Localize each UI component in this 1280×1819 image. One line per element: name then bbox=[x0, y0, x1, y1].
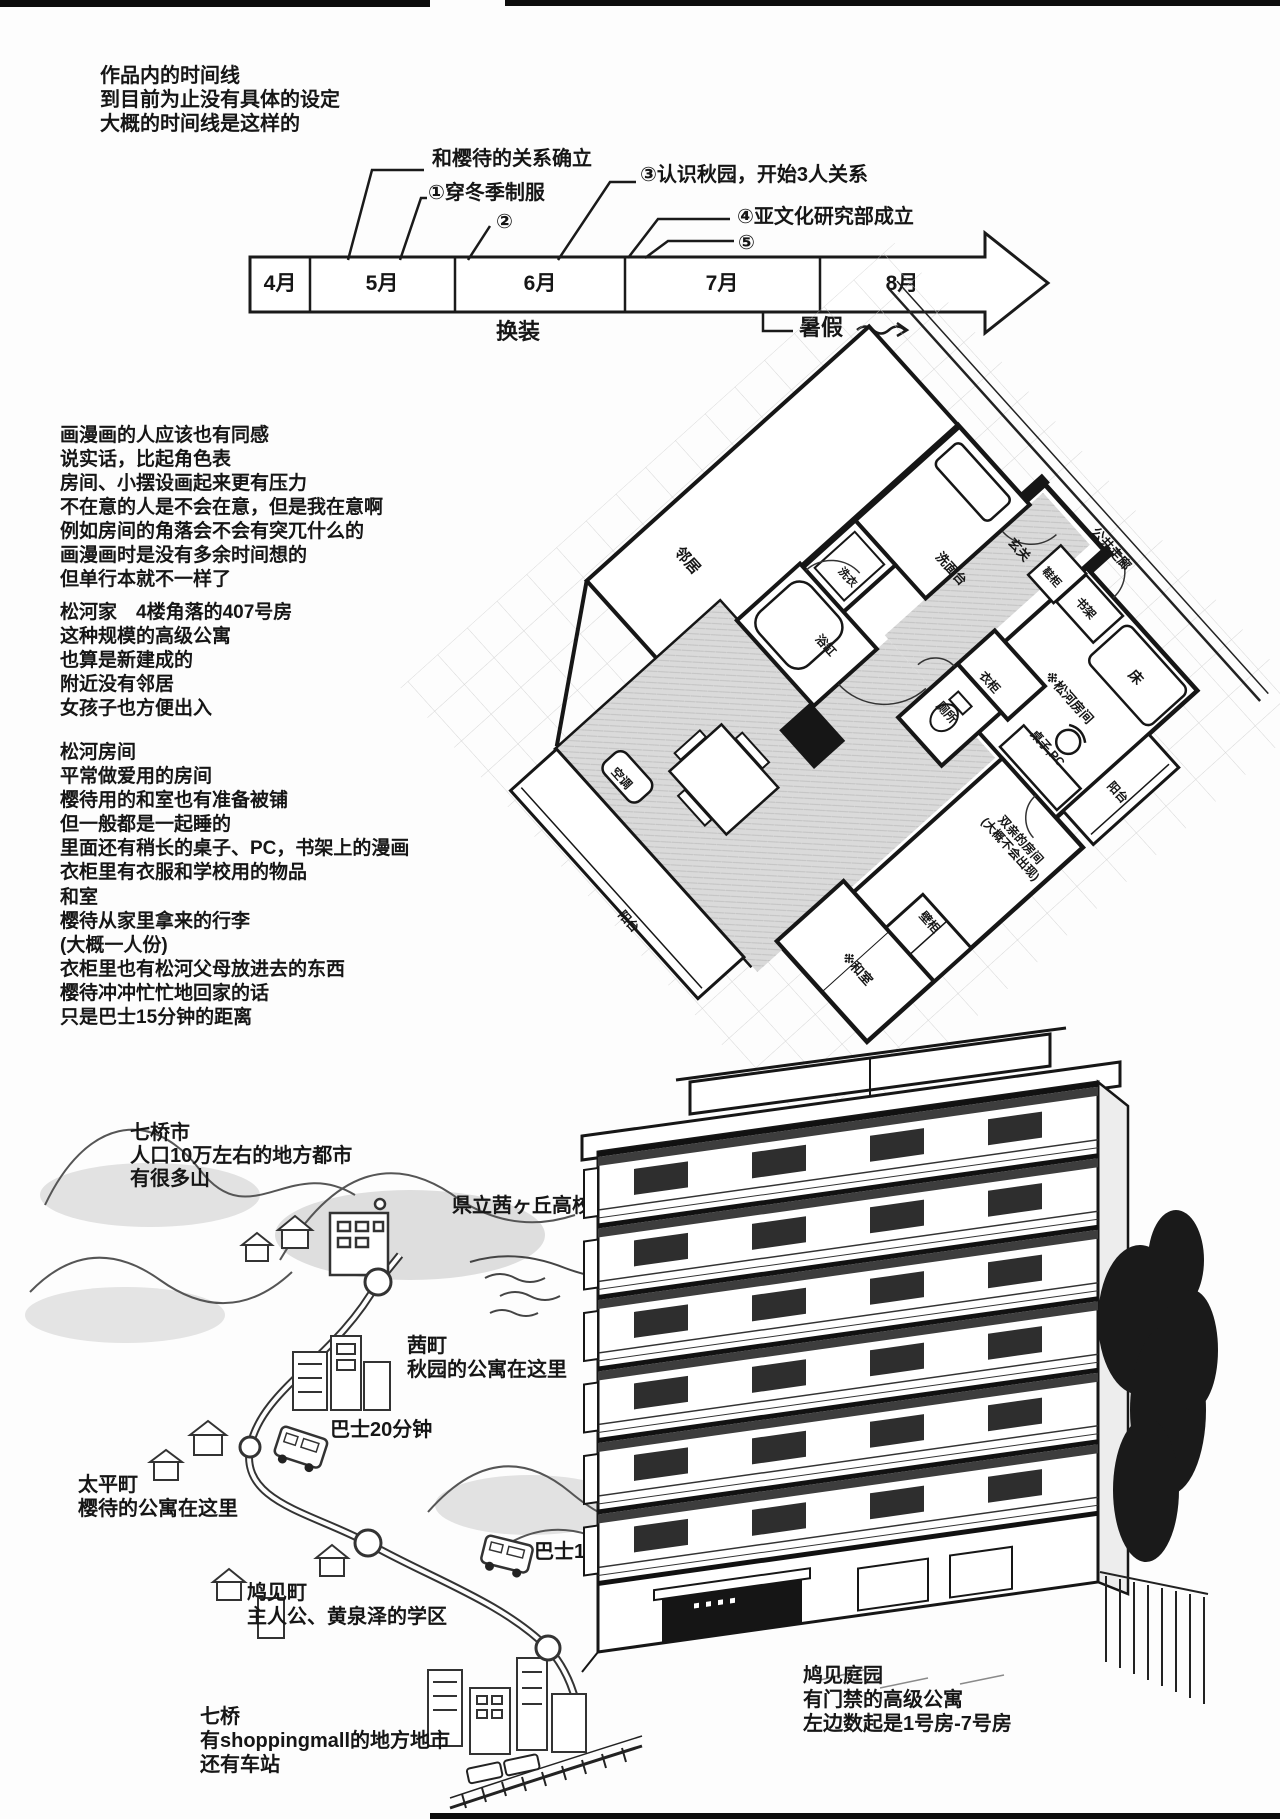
timeline-ann-sakura: 和樱待的关系确立 bbox=[432, 147, 592, 171]
timeline-month: 5月 bbox=[366, 271, 399, 296]
intro-note: 作品内的时间线 到目前为止没有具体的设定 大概的时间线是这样的 bbox=[100, 64, 340, 136]
building-caption: 鸠见庭园 有门禁的高级公寓 左边数起是1号房-7号房 bbox=[803, 1664, 1012, 1736]
map-label-school: 県立茜ヶ丘高校 bbox=[452, 1194, 592, 1218]
note-line: 樱待用的和室也有准备被铺 bbox=[60, 789, 409, 813]
note-line: 房间、小摆设画起来更有压力 bbox=[60, 472, 383, 496]
building-graphic bbox=[580, 1020, 1280, 1720]
note-line: 只是巴士15分钟的距离 bbox=[60, 1006, 345, 1030]
map-label-hatomi: 鸠见町 主人公、黄泉泽的学区 bbox=[247, 1581, 447, 1629]
timeline-ann-5: ⑤ bbox=[738, 231, 755, 255]
note-line: 衣柜里有衣服和学校用的物品 bbox=[60, 861, 409, 885]
note-line: 说实话，比起角色表 bbox=[60, 448, 383, 472]
map-label-akane: 茜町 秋园的公寓在这里 bbox=[407, 1334, 567, 1382]
timeline-ann-4: ④亚文化研究部成立 bbox=[737, 205, 914, 229]
map-label-bus20: 巴士20分钟 bbox=[330, 1418, 432, 1442]
scan-edge-top-left bbox=[0, 0, 430, 7]
note-line: 樱待从家里拿来的行李 bbox=[60, 910, 345, 934]
map-label-nanahashi: 七桥 有shoppingmall的地方地市 还有车站 bbox=[200, 1705, 450, 1777]
note-line: 画漫画时是没有多余时间想的 bbox=[60, 544, 383, 568]
note-line: 女孩子也方便出入 bbox=[60, 697, 292, 721]
note-line: 和室 bbox=[60, 886, 345, 910]
note-line: 附近没有邻居 bbox=[60, 673, 292, 697]
intro-line: 大概的时间线是这样的 bbox=[100, 112, 340, 136]
note-line: 里面还有稍长的桌子、PC，书架上的漫画 bbox=[60, 837, 409, 861]
timeline-month: 4月 bbox=[264, 271, 297, 296]
timeline-ann-3: ③认识秋园，开始3人关系 bbox=[640, 163, 868, 187]
note-line: 这种规模的高级公寓 bbox=[60, 625, 292, 649]
note-manga: 画漫画的人应该也有同感 说实话，比起角色表 房间、小摆设画起来更有压力 不在意的… bbox=[60, 424, 383, 592]
note-line: 也算是新建成的 bbox=[60, 649, 292, 673]
note-line: 不在意的人是不会在意，但是我在意啊 bbox=[60, 496, 383, 520]
note-line: 例如房间的角落会不会有突兀什么的 bbox=[60, 520, 383, 544]
bus-icon bbox=[271, 1425, 328, 1475]
note-house: 松河家 4楼角落的407号房 这种规模的高级公寓 也算是新建成的 附近没有邻居 … bbox=[60, 601, 292, 721]
timeline-month: 7月 bbox=[706, 271, 739, 296]
note-line: 平常做爱用的房间 bbox=[60, 765, 409, 789]
note-line: (大概一人份) bbox=[60, 934, 345, 958]
floorplan-graphic bbox=[420, 300, 1240, 1040]
note-line: 但单行本就不一样了 bbox=[60, 568, 383, 592]
timeline-ann-2: ② bbox=[496, 210, 513, 234]
note-washitsu: 和室 樱待从家里拿来的行李 (大概一人份) 衣柜里也有松河父母放进去的东西 樱待… bbox=[60, 886, 345, 1030]
timeline-ann-1: ①穿冬季制服 bbox=[428, 181, 545, 205]
note-line: 但一般都是一起睡的 bbox=[60, 813, 409, 837]
note-line: 松河家 4楼角落的407号房 bbox=[60, 601, 292, 625]
intro-line: 作品内的时间线 bbox=[100, 64, 340, 88]
map-label-taihei: 太平町 樱待的公寓在这里 bbox=[78, 1473, 238, 1521]
scan-edge-top-right bbox=[505, 0, 1280, 6]
fence bbox=[1100, 1572, 1208, 1704]
note-line: 画漫画的人应该也有同感 bbox=[60, 424, 383, 448]
note-line: 松河房间 bbox=[60, 741, 409, 765]
note-line: 衣柜里也有松河父母放进去的东西 bbox=[60, 958, 345, 982]
doujin-settings-page: 作品内的时间线 到目前为止没有具体的设定 大概的时间线是这样的 和樱待的关系确立… bbox=[0, 0, 1280, 1819]
note-line: 樱待冲冲忙忙地回家的话 bbox=[60, 982, 345, 1006]
bus-icon bbox=[479, 1535, 534, 1580]
note-room: 松河房间 平常做爱用的房间 樱待用的和室也有准备被铺 但一般都是一起睡的 里面还… bbox=[60, 741, 409, 885]
intro-line: 到目前为止没有具体的设定 bbox=[100, 88, 340, 112]
map-city-note: 七桥市 人口10万左右的地方都市 有很多山 bbox=[130, 1122, 352, 1191]
timeline-month: 6月 bbox=[524, 271, 557, 296]
